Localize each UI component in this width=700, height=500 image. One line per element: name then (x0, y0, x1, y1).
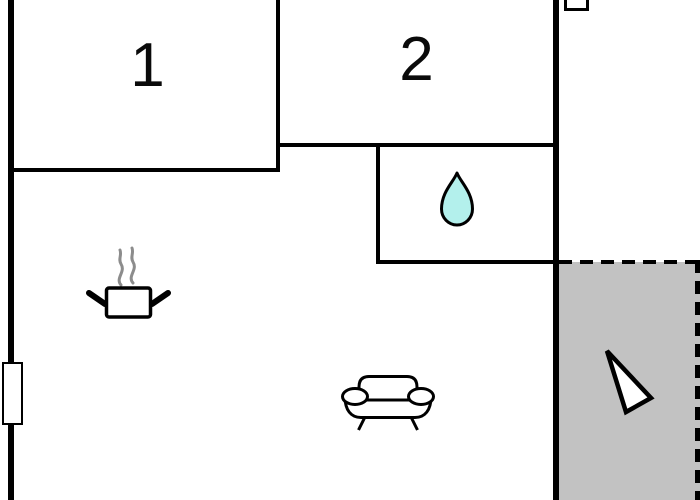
exterior-wall-left (8, 0, 14, 500)
pot-body (107, 288, 151, 317)
north-arrow-shape (607, 351, 651, 412)
wall-room2-bottom (276, 143, 559, 147)
room-2-label: 2 (399, 29, 432, 91)
wall-bathroom-left (376, 143, 380, 264)
terrace-dashed-border-top (559, 260, 700, 264)
exterior-wall-right (553, 0, 559, 500)
pot-handle-left (89, 293, 105, 304)
north-arrow-icon (595, 340, 665, 425)
terrace-dashed-border-right (695, 260, 700, 500)
wall-bathroom-bottom (376, 260, 559, 264)
wall-room1-bottom (8, 168, 280, 172)
sofa-armrest-right (409, 389, 434, 405)
water-drop-shape (442, 173, 473, 225)
sofa-armrest-left (343, 389, 368, 405)
steam-line-left (119, 250, 122, 285)
sofa-icon (338, 370, 438, 435)
window-icon (2, 362, 23, 425)
water-drop-icon (435, 165, 480, 235)
cooking-pot-icon (85, 246, 175, 326)
pot-handle-right (152, 293, 168, 304)
steam-line-right (131, 248, 134, 283)
floor-plan: 1 2 (0, 0, 700, 500)
vent-icon (564, 0, 589, 11)
room-1-label: 1 (130, 35, 163, 97)
